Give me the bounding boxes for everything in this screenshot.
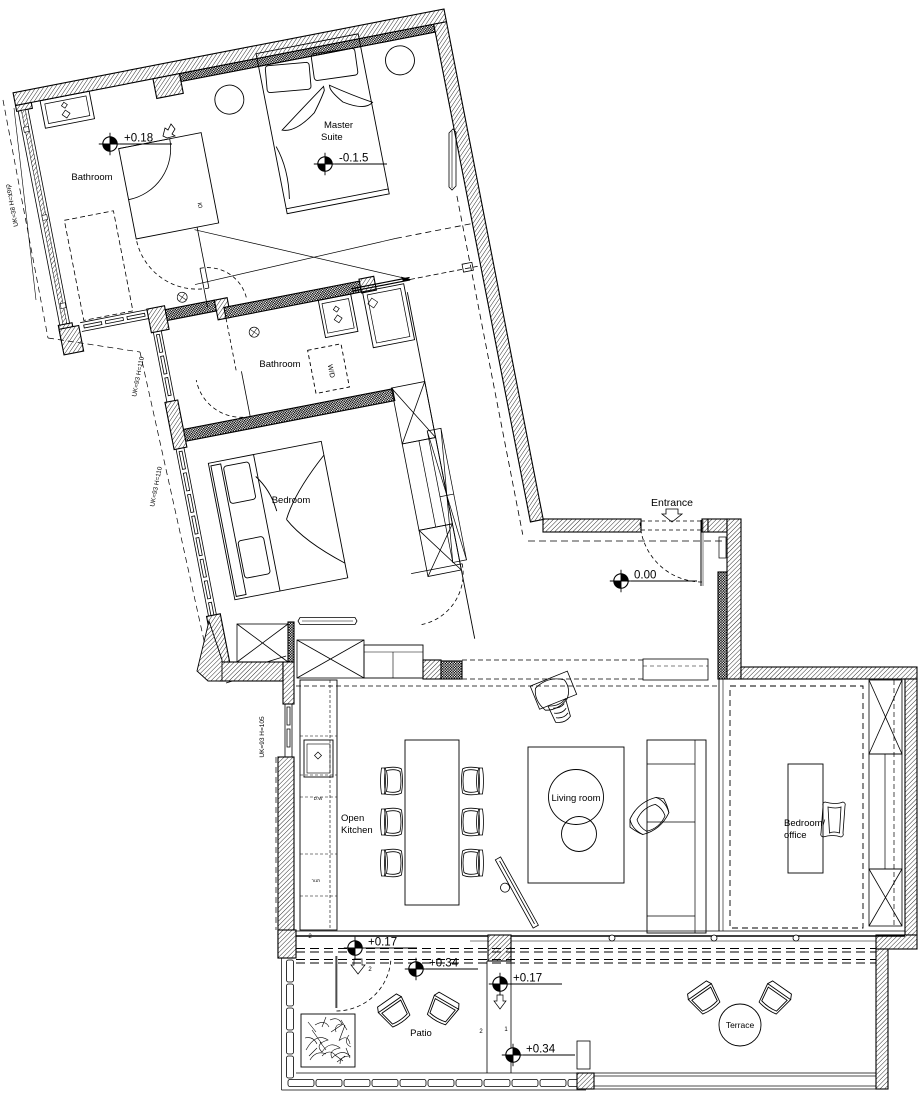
svg-text:+0.34: +0.34	[429, 958, 459, 970]
svg-text:UK=93 H=105: UK=93 H=105	[259, 716, 266, 758]
svg-text:Open: Open	[341, 813, 364, 824]
svg-text:Kitchen: Kitchen	[341, 825, 373, 836]
svg-text:Suite: Suite	[321, 132, 343, 143]
svg-text:-0.1.5: -0.1.5	[339, 153, 368, 165]
svg-text:תנור: תנור	[312, 878, 320, 883]
svg-text:0.00: 0.00	[634, 570, 656, 582]
svg-text:Entrance: Entrance	[651, 497, 693, 509]
svg-text:D.W: D.W	[314, 796, 324, 801]
svg-text:Terrace: Terrace	[726, 1020, 755, 1030]
svg-text:+0.17: +0.17	[368, 937, 397, 949]
svg-text:+0.18: +0.18	[124, 133, 153, 145]
svg-text:Bedroom: Bedroom	[272, 495, 311, 506]
svg-text:Bathroom: Bathroom	[259, 359, 300, 370]
svg-text:Bathroom: Bathroom	[71, 172, 112, 183]
svg-text:Living room: Living room	[551, 793, 600, 804]
svg-text:office: office	[784, 830, 807, 841]
svg-text:+0.17: +0.17	[513, 973, 542, 985]
svg-text:+0.34: +0.34	[526, 1044, 556, 1056]
svg-text:Master: Master	[324, 120, 353, 131]
svg-text:Bedroom/: Bedroom/	[784, 818, 826, 829]
svg-text:Patio: Patio	[410, 1028, 432, 1039]
